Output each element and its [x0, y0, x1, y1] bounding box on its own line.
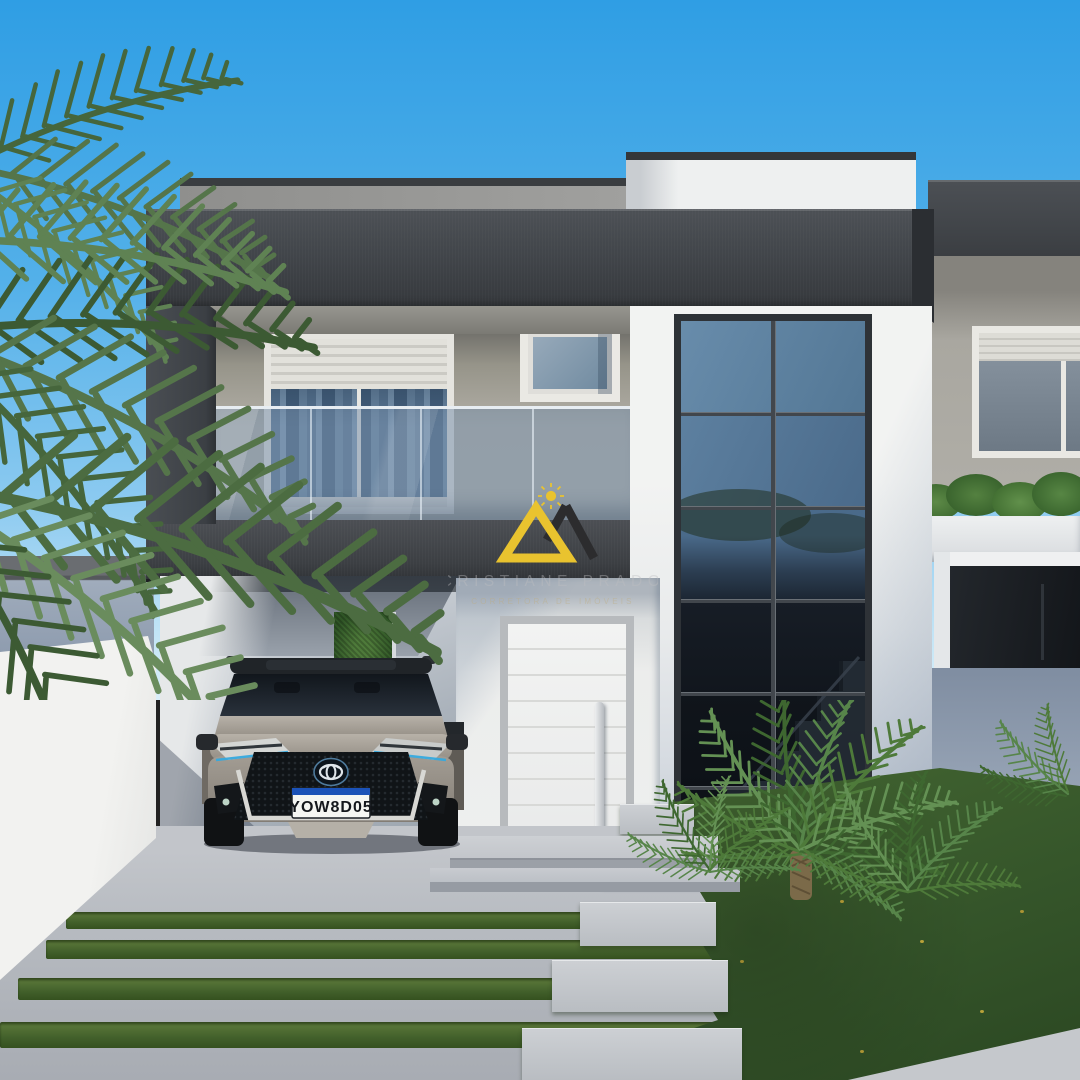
white-parapet [626, 160, 916, 216]
neighbor-carport-column [934, 552, 950, 672]
palm-canopy [0, 40, 446, 700]
neighbor-carport-opening [950, 566, 1080, 670]
neighbor-fascia [928, 180, 1080, 260]
watermark: CRISTIANE PRADO CORRETORA DE IMÓVEIS [448, 468, 658, 626]
palm-right-wall [979, 703, 1080, 806]
architectural-render: YOW8D05 [0, 0, 1080, 1080]
neighbor-window-mullion [1061, 361, 1066, 451]
watermark-tagline: CORRETORA DE IMÓVEIS [471, 597, 634, 606]
sago-shrub-left [623, 776, 801, 898]
carport-inner-edge [1041, 584, 1044, 660]
sun-icon [538, 483, 564, 509]
neighbor-window [972, 326, 1080, 458]
white-parapet-cap [626, 152, 916, 160]
car-skid-plate [288, 822, 374, 838]
neighbor-window-shutter [979, 333, 1080, 361]
small-window-shade [598, 332, 612, 394]
license-plate: YOW8D05 [289, 788, 372, 818]
car-mirror [446, 734, 468, 750]
watermark-brand: CRISTIANE PRADO [448, 573, 658, 590]
garden-sago-palms [520, 700, 1080, 1080]
license-plate-text: YOW8D05 [289, 799, 372, 816]
toyota-logo [314, 759, 348, 786]
car-mirror [196, 734, 218, 750]
watermark-logo [504, 483, 594, 558]
